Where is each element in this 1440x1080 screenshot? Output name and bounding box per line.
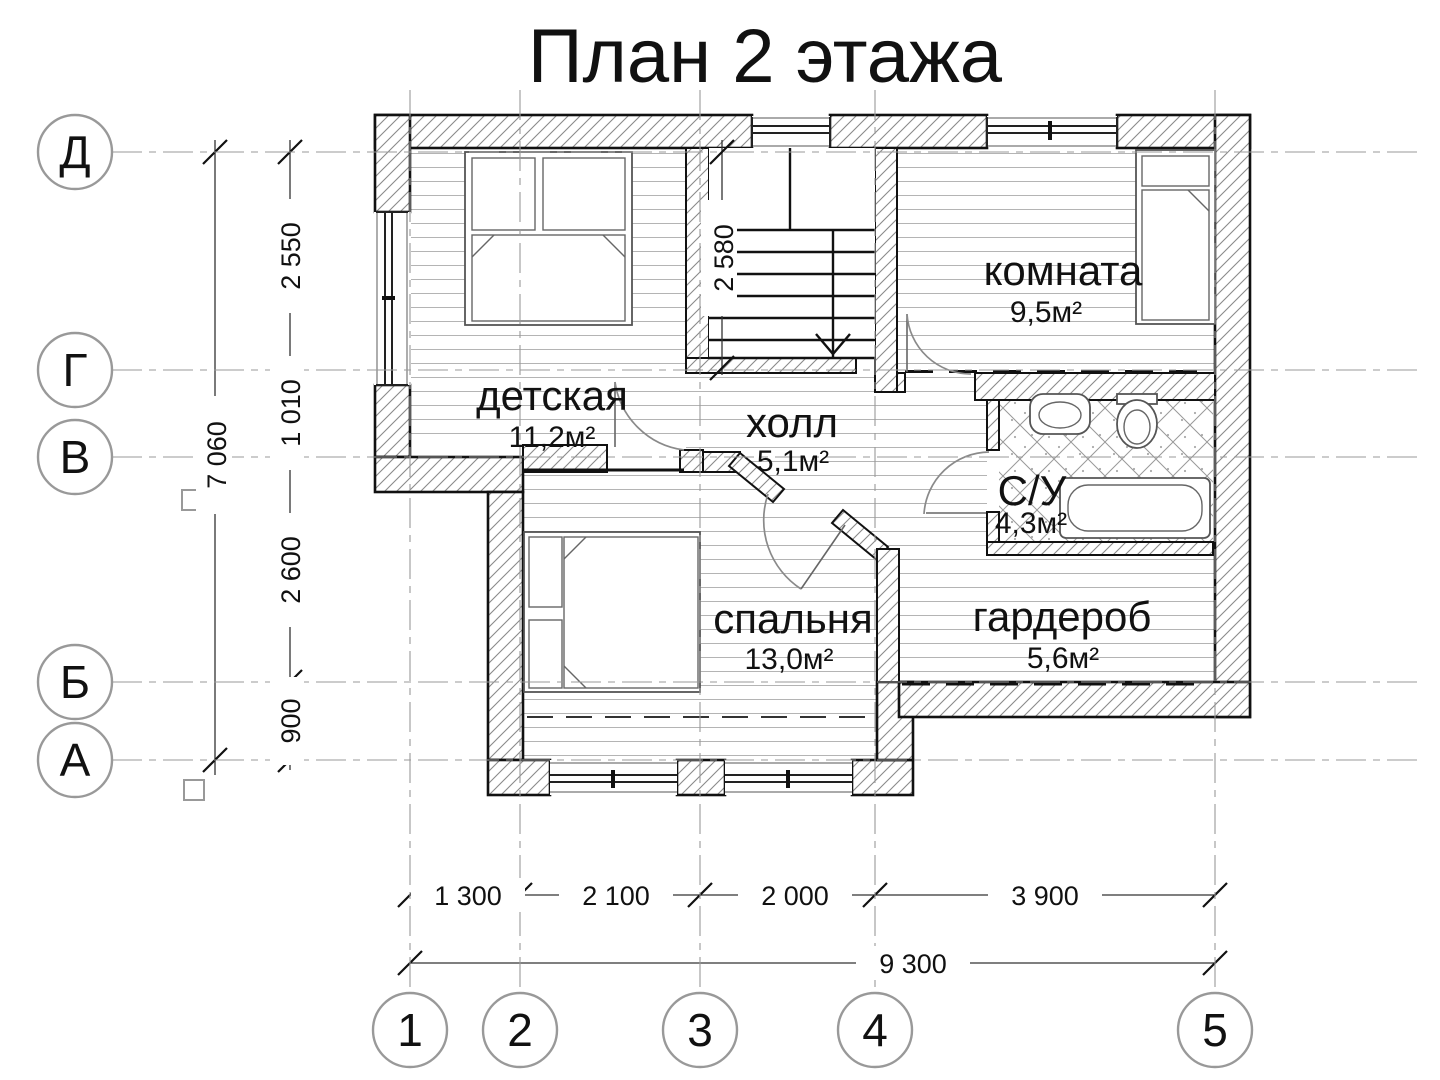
wall-garderob-bottom: [899, 682, 1250, 717]
wall-top-left: [375, 115, 752, 148]
axis-col-label-4: 4: [862, 1004, 888, 1056]
room-area-su: 4,3м²: [995, 507, 1067, 540]
room-label-garderob: гардероб: [973, 593, 1152, 640]
axis-col-label-5: 5: [1202, 1004, 1228, 1056]
axis-col-label-2: 2: [507, 1004, 533, 1056]
wall-step-block: [375, 457, 523, 492]
dim-bottom-seg-4: 3 900: [1011, 881, 1079, 911]
wall-left-upper-pier: [375, 115, 410, 212]
room-area-garderob: 5,6м²: [1027, 642, 1099, 675]
dim-stairs: 2 580: [709, 224, 739, 292]
dim-bottom-seg-3: 2 000: [761, 881, 829, 911]
window-spalnya-right: [725, 760, 852, 795]
dim-bottom-seg-2: 2 100: [582, 881, 650, 911]
wall-spalnya-left: [488, 492, 523, 760]
dim-bottom-seg-1: 1 300: [434, 881, 502, 911]
wall-top-mid: [830, 115, 987, 148]
wall-right: [1215, 115, 1250, 717]
sink-icon: [1030, 394, 1090, 434]
room-area-detskaya: 11,2м²: [509, 421, 596, 454]
axis-row-label-d: Д: [59, 126, 90, 178]
wall-pier-bottom-right: [852, 760, 913, 795]
window-komnata-top: [987, 116, 1117, 147]
room-label-hall: холл: [746, 399, 838, 446]
wall-stair-right: [875, 148, 897, 392]
wall-su-top: [975, 373, 1215, 400]
wall-komnata-pier: [897, 373, 905, 392]
bathtub-icon: [1060, 478, 1210, 538]
dim-left-seg-4: 900: [276, 698, 306, 743]
room-area-komnata: 9,5м²: [1010, 296, 1082, 329]
wall-left-lower-pier: [375, 385, 410, 457]
axis-col-label-1: 1: [397, 1004, 423, 1056]
wall-stair-bottom: [686, 358, 856, 373]
room-label-spalnya: спальня: [713, 595, 872, 642]
dim-left-seg-3: 2 600: [276, 536, 306, 604]
dim-left-total: 7 060: [202, 421, 232, 489]
window-spalnya-left: [550, 760, 677, 795]
bed-detskaya-icon: [465, 152, 632, 325]
wall-pier-bottom-mid: [677, 760, 725, 795]
wall-spalnya-garderob: [877, 549, 899, 682]
bed-komnata-icon: [1136, 150, 1215, 324]
axis-row-label-v: В: [60, 431, 91, 483]
axis-col-label-3: 3: [687, 1004, 713, 1056]
axis-row-label-a: А: [60, 734, 91, 786]
marker-square-bottom: [184, 780, 204, 800]
dim-bottom-total: 9 300: [879, 949, 947, 979]
axis-row-label-b: Б: [60, 656, 90, 708]
wall-su-bottom: [987, 542, 1213, 555]
page-title: План 2 этажа: [528, 14, 1003, 99]
floor-plan-page: Д Г В Б А 1 2 3 4 5 7 060 2 550 1 010 2 …: [0, 0, 1440, 1080]
window-detskaya-left: [374, 212, 411, 385]
room-area-hall: 5,1м²: [757, 445, 829, 478]
wall-pier-bottom-left: [488, 760, 550, 795]
toilet-icon: [1117, 394, 1157, 448]
room-label-komnata: комната: [984, 247, 1143, 294]
room-label-detskaya: детская: [476, 372, 628, 419]
dim-left-seg-1: 2 550: [276, 222, 306, 290]
dim-left-seg-2: 1 010: [276, 379, 306, 447]
room-area-spalnya: 13,0м²: [744, 643, 833, 676]
bed-spalnya-icon: [524, 532, 700, 692]
axis-row-label-g: Г: [63, 344, 88, 396]
floor-plan-drawing: Д Г В Б А 1 2 3 4 5 7 060 2 550 1 010 2 …: [0, 0, 1440, 1080]
window-stairs-top: [752, 116, 830, 147]
wall-su-left-upper: [987, 400, 999, 450]
